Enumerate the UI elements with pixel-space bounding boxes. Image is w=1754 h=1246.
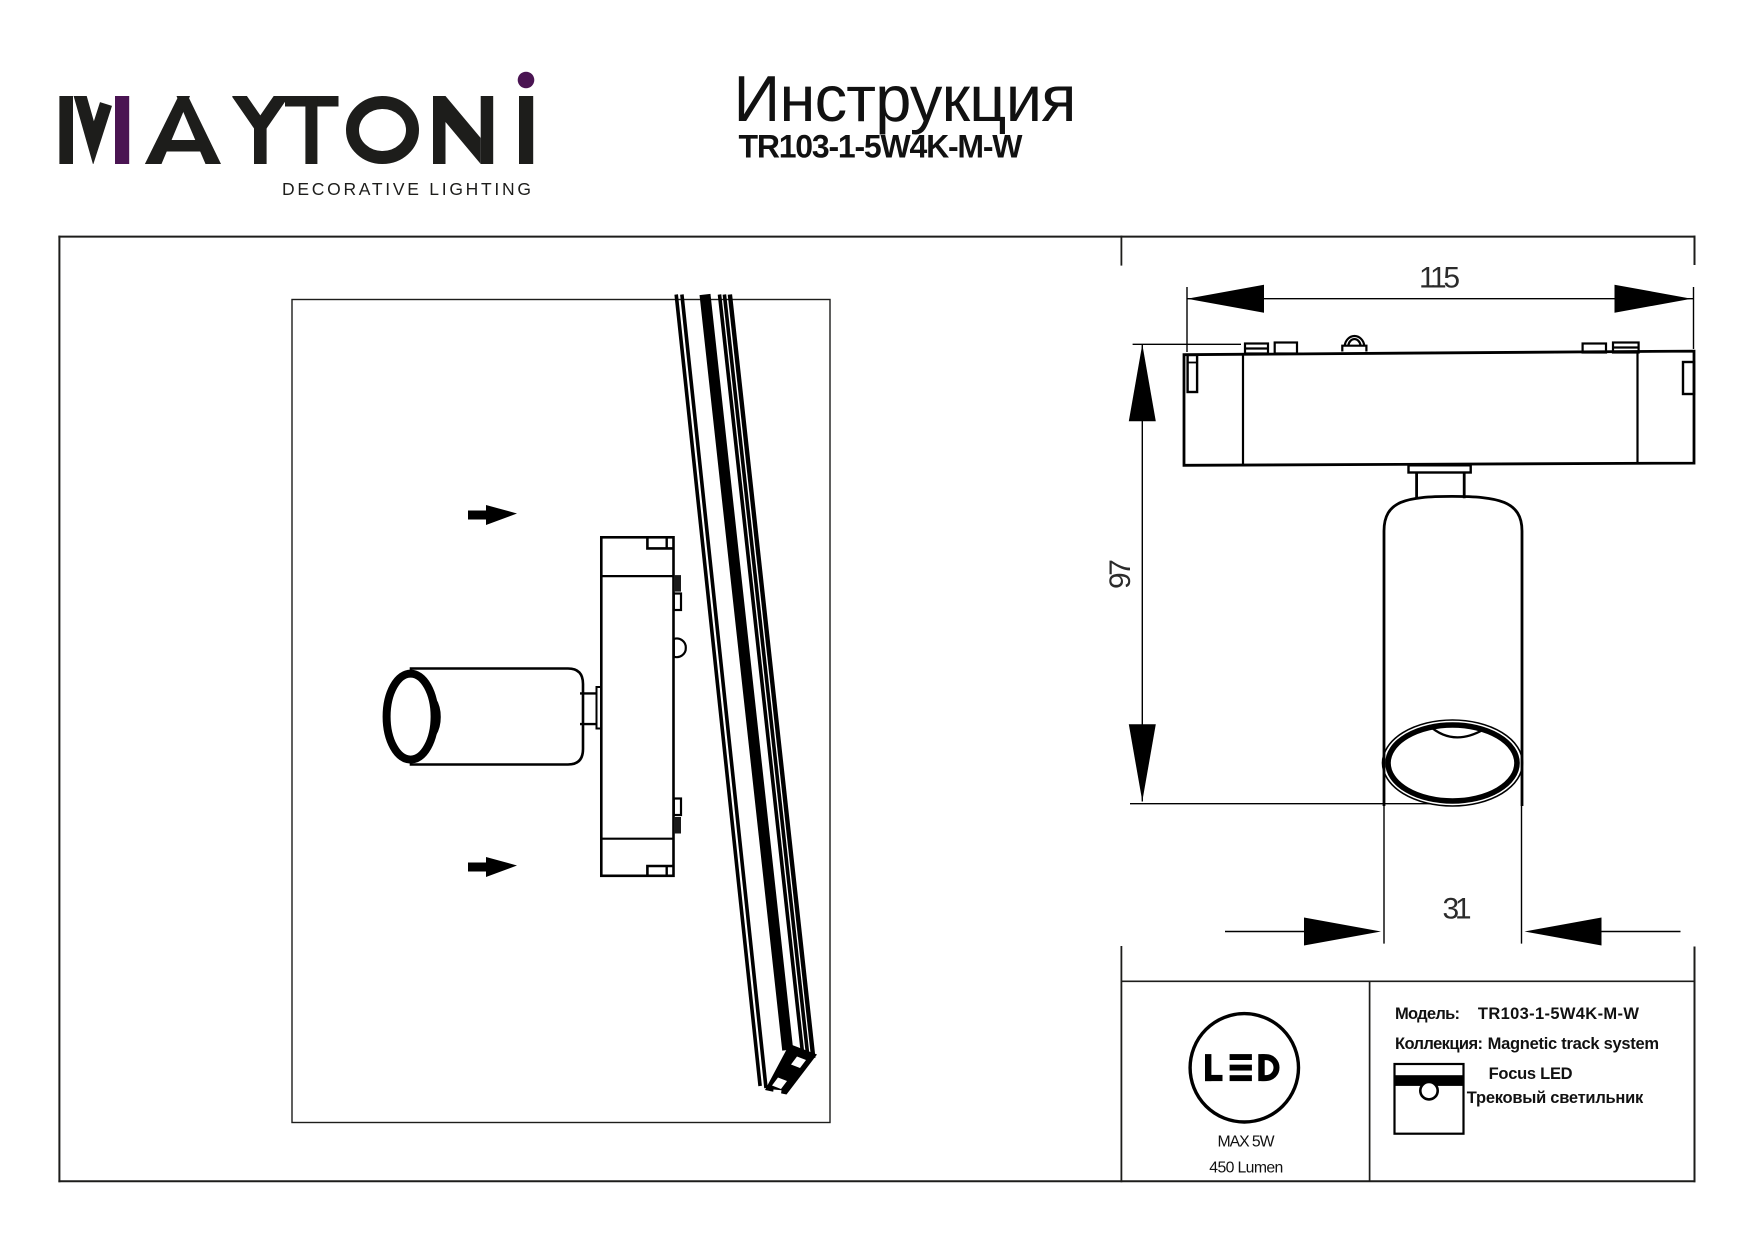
svg-text:97: 97 — [1104, 559, 1137, 589]
svg-text:TR103-1-5W4K-M-W: TR103-1-5W4K-M-W — [739, 129, 1024, 165]
svg-text:Коллекция:: Коллекция: — [1395, 1035, 1483, 1053]
svg-text:450 Lumen: 450 Lumen — [1209, 1159, 1283, 1176]
svg-text:Модель:: Модель: — [1395, 1005, 1460, 1023]
svg-text:TR103-1-5W4K-M-W: TR103-1-5W4K-M-W — [1478, 1005, 1639, 1023]
svg-text:DECORATIVE LIGHTING: DECORATIVE LIGHTING — [282, 179, 531, 199]
svg-text:115: 115 — [1419, 262, 1460, 295]
svg-text:Инструкция: Инструкция — [734, 62, 1077, 135]
svg-text:Magnetic track system: Magnetic track system — [1488, 1035, 1660, 1053]
svg-text:Focus LED: Focus LED — [1489, 1065, 1573, 1083]
svg-text:31: 31 — [1443, 893, 1472, 926]
svg-text:MAX 5W: MAX 5W — [1218, 1134, 1275, 1151]
svg-text:Трековый светильник: Трековый светильник — [1467, 1089, 1644, 1107]
